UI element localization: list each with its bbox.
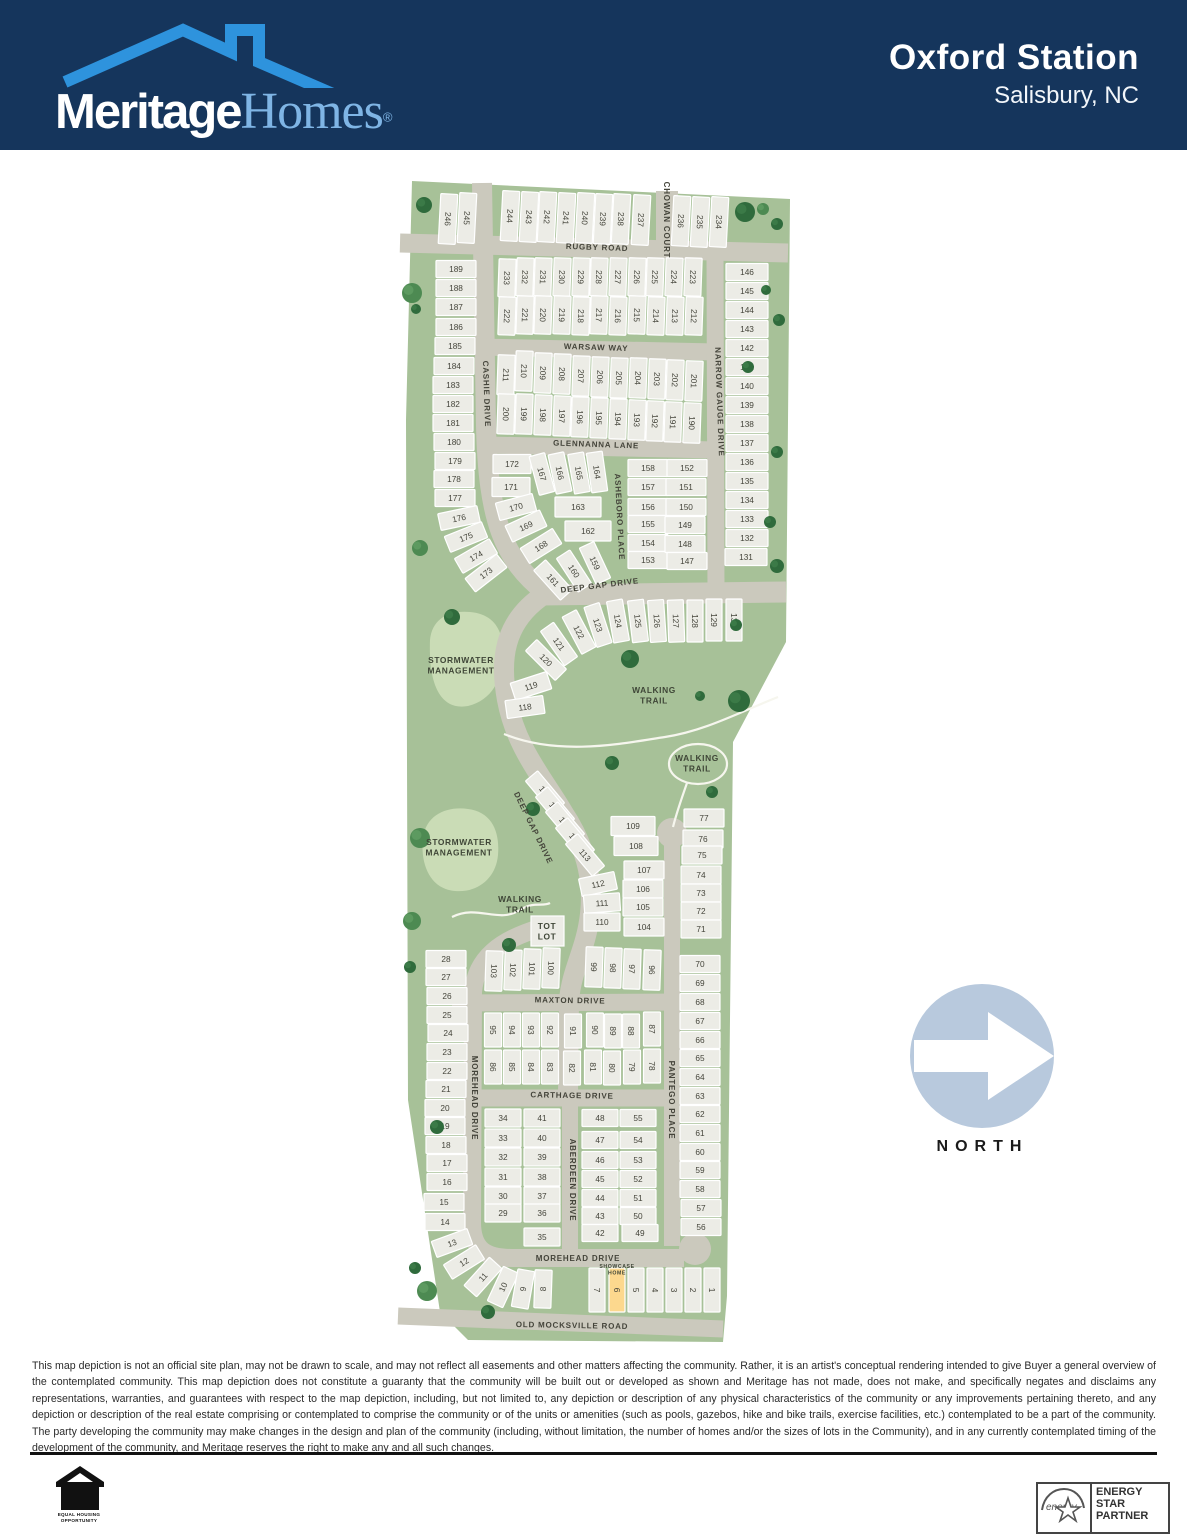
lot-number: 39 bbox=[537, 1152, 547, 1162]
lot-154: 154 bbox=[628, 535, 668, 552]
lot-number: 220 bbox=[538, 308, 548, 323]
lot-number: 30 bbox=[498, 1191, 508, 1201]
lot-number: 208 bbox=[557, 367, 567, 382]
lot-number: 95 bbox=[488, 1025, 498, 1035]
lot-number: 59 bbox=[695, 1165, 705, 1175]
lot-number: 101 bbox=[527, 962, 537, 977]
lot-number: 149 bbox=[678, 520, 692, 530]
lot-21: 21 bbox=[426, 1081, 466, 1098]
lot-20: 20 bbox=[425, 1100, 465, 1117]
lot-138: 138 bbox=[726, 416, 768, 433]
lot-number: 55 bbox=[633, 1113, 643, 1123]
lot-number: 244 bbox=[505, 209, 516, 224]
lot-number: 67 bbox=[695, 1016, 705, 1026]
lot-number: 219 bbox=[557, 308, 567, 323]
lot-219: 219 bbox=[553, 296, 571, 335]
lot-number: 236 bbox=[676, 214, 687, 229]
lot-29: 29 bbox=[485, 1204, 521, 1222]
lot-number: 214 bbox=[651, 309, 661, 324]
lot-171: 171 bbox=[492, 478, 530, 497]
lot-206: 206 bbox=[591, 357, 609, 398]
lot-number: 96 bbox=[647, 965, 657, 975]
lot-47: 47 bbox=[582, 1132, 618, 1149]
lot-number: 14 bbox=[440, 1217, 450, 1227]
tree-icon bbox=[730, 619, 742, 631]
lot-number: 5 bbox=[631, 1288, 641, 1293]
lot-number: 135 bbox=[740, 476, 754, 486]
lot-27: 27 bbox=[426, 969, 466, 986]
lot-number: 66 bbox=[695, 1035, 705, 1045]
lot-51: 51 bbox=[620, 1190, 656, 1207]
lot-number: 156 bbox=[641, 502, 655, 512]
lot-number: 41 bbox=[537, 1113, 547, 1123]
tree-icon bbox=[771, 446, 783, 458]
lot-number: 218 bbox=[576, 309, 586, 324]
lot-202: 202 bbox=[666, 360, 684, 401]
street-label: CARTHAGE DRIVE bbox=[530, 1090, 613, 1100]
lot-60: 60 bbox=[680, 1144, 720, 1161]
lot-41: 41 bbox=[524, 1109, 560, 1127]
lot-number: 56 bbox=[696, 1222, 706, 1232]
tree-icon bbox=[757, 203, 769, 215]
lot-131: 131 bbox=[725, 549, 767, 566]
lot-number: 148 bbox=[678, 539, 692, 549]
lot-155: 155 bbox=[628, 516, 668, 533]
lot-18: 18 bbox=[426, 1137, 466, 1154]
lot-number: 118 bbox=[518, 701, 533, 713]
lot-56: 56 bbox=[681, 1219, 721, 1236]
tree-icon bbox=[430, 1120, 444, 1134]
lot-number: 46 bbox=[595, 1155, 605, 1165]
tree-icon bbox=[409, 1262, 421, 1274]
lot-198: 198 bbox=[534, 395, 552, 436]
lot-207: 207 bbox=[572, 356, 590, 397]
lot-number: 54 bbox=[633, 1135, 643, 1145]
lot-162: 162 bbox=[565, 521, 611, 541]
lot-number: 138 bbox=[740, 419, 754, 429]
lot-number: 26 bbox=[442, 991, 452, 1001]
lot-235: 235 bbox=[690, 197, 710, 248]
lot-number: 107 bbox=[637, 865, 651, 875]
lot-136: 136 bbox=[726, 454, 768, 471]
lot-148: 148 bbox=[665, 536, 705, 553]
lot-number: 234 bbox=[714, 215, 725, 230]
lot-number: 243 bbox=[524, 210, 535, 225]
lot-14: 14 bbox=[425, 1214, 465, 1231]
lot-153: 153 bbox=[628, 552, 668, 569]
lot-38: 38 bbox=[524, 1168, 560, 1186]
lot-1: 1 bbox=[704, 1268, 720, 1312]
lot-58: 58 bbox=[680, 1181, 720, 1198]
site-plan-page: { "header": { "brand_bold": "Meritage", … bbox=[0, 0, 1187, 1536]
lot-2: 2 bbox=[685, 1268, 701, 1312]
lot-111: 111 bbox=[583, 893, 620, 913]
lot-number: 158 bbox=[641, 463, 655, 473]
lot-number: 34 bbox=[498, 1113, 508, 1123]
lot-147: 147 bbox=[667, 553, 707, 570]
lot-number: 91 bbox=[568, 1026, 578, 1036]
lot-number: 22 bbox=[442, 1066, 452, 1076]
lot-237: 237 bbox=[631, 195, 651, 246]
lot-85: 85 bbox=[504, 1050, 521, 1084]
lot-16: 16 bbox=[427, 1174, 467, 1191]
lot-number: 86 bbox=[488, 1062, 498, 1072]
lot-97: 97 bbox=[623, 949, 641, 990]
lot-88: 88 bbox=[623, 1014, 640, 1048]
lot-number: 131 bbox=[739, 552, 753, 562]
lot-number: 230 bbox=[557, 270, 567, 285]
lot-number: 58 bbox=[695, 1184, 705, 1194]
lot-89: 89 bbox=[605, 1014, 622, 1048]
lot-number: 137 bbox=[740, 438, 754, 448]
lot-number: 226 bbox=[632, 270, 642, 285]
lot-number: 110 bbox=[595, 917, 609, 927]
area-label: TOTLOT bbox=[538, 921, 557, 942]
lot-215: 215 bbox=[628, 296, 646, 335]
lot-number: 33 bbox=[498, 1133, 508, 1143]
tree-icon bbox=[417, 1281, 437, 1301]
lot-135: 135 bbox=[726, 473, 768, 490]
lot-32: 32 bbox=[485, 1148, 521, 1166]
lot-234: 234 bbox=[709, 197, 729, 248]
lot-33: 33 bbox=[485, 1129, 521, 1147]
lot-number: 196 bbox=[575, 410, 585, 425]
lot-number: 242 bbox=[542, 210, 553, 225]
eho-label-line2: OPPORTUNITY bbox=[52, 1518, 106, 1524]
lot-232: 232 bbox=[516, 258, 534, 297]
area-label: STORMWATERMANAGEMENT bbox=[426, 837, 493, 858]
lot-number: 108 bbox=[629, 841, 643, 851]
lot-number: 37 bbox=[537, 1191, 547, 1201]
lot-108: 108 bbox=[614, 837, 658, 856]
lot-93: 93 bbox=[523, 1013, 540, 1047]
lot-193: 193 bbox=[628, 400, 646, 441]
tree-icon bbox=[735, 202, 755, 222]
lot-number: 6 bbox=[612, 1288, 622, 1293]
lot-number: 195 bbox=[594, 411, 604, 426]
lot-241: 241 bbox=[556, 193, 576, 244]
lot-number: 62 bbox=[695, 1109, 705, 1119]
lot-50: 50 bbox=[620, 1208, 656, 1225]
lot-number: 109 bbox=[626, 821, 640, 831]
lot-number: 221 bbox=[520, 308, 530, 323]
lot-227: 227 bbox=[609, 258, 627, 297]
lot-number: 190 bbox=[687, 416, 697, 431]
lot-109: 109 bbox=[611, 817, 655, 836]
lot-22: 22 bbox=[427, 1063, 467, 1080]
energy-star-partner-logo: energy ENERGYSTARPARTNER bbox=[1036, 1482, 1170, 1534]
lot-25: 25 bbox=[427, 1007, 467, 1024]
lot-84: 84 bbox=[523, 1050, 540, 1084]
lot-226: 226 bbox=[628, 258, 646, 297]
lot-52: 52 bbox=[620, 1171, 656, 1188]
lot-number: 163 bbox=[571, 502, 585, 512]
lot-number: 232 bbox=[520, 270, 530, 285]
lot-63: 63 bbox=[680, 1088, 720, 1105]
lot-number: 198 bbox=[538, 408, 548, 423]
lot-144: 144 bbox=[726, 302, 768, 319]
lot-number: 140 bbox=[740, 381, 754, 391]
lot-181: 181 bbox=[433, 415, 473, 432]
lot-number: 93 bbox=[526, 1025, 536, 1035]
lot-number: 133 bbox=[740, 514, 754, 524]
lot-218: 218 bbox=[572, 297, 590, 336]
street-label: MOREHEAD DRIVE bbox=[470, 1056, 479, 1141]
lot-number: 223 bbox=[688, 270, 698, 285]
lot-number: 94 bbox=[507, 1025, 517, 1035]
lot-107: 107 bbox=[624, 861, 664, 879]
lot-231: 231 bbox=[534, 258, 552, 297]
lot-79: 79 bbox=[624, 1050, 641, 1084]
lot-214: 214 bbox=[647, 297, 665, 336]
lot-189: 189 bbox=[436, 261, 476, 278]
lot-105: 105 bbox=[623, 898, 663, 916]
lot-number: 98 bbox=[608, 963, 618, 973]
lot-212: 212 bbox=[685, 297, 703, 336]
lot-number: 235 bbox=[695, 215, 706, 230]
lot-134: 134 bbox=[726, 492, 768, 509]
lot-number: 68 bbox=[695, 997, 705, 1007]
lot-133: 133 bbox=[726, 511, 768, 528]
lot-number: 4 bbox=[650, 1288, 660, 1293]
lot-number: 103 bbox=[489, 964, 499, 979]
lot-102: 102 bbox=[504, 950, 522, 991]
lot-number: 70 bbox=[695, 959, 705, 969]
street-label: MOREHEAD DRIVE bbox=[536, 1254, 621, 1263]
lot-92: 92 bbox=[542, 1013, 559, 1047]
lot-236: 236 bbox=[671, 196, 691, 247]
lot-132: 132 bbox=[726, 530, 768, 547]
lot-158: 158 bbox=[628, 460, 668, 477]
lot-number: 134 bbox=[740, 495, 754, 505]
lot-number: 82 bbox=[567, 1063, 577, 1073]
street-label: ABERDEEN DRIVE bbox=[568, 1139, 577, 1222]
lot-number: 65 bbox=[695, 1053, 705, 1063]
lot-number: 90 bbox=[590, 1025, 600, 1035]
lot-number: 202 bbox=[670, 373, 680, 388]
lot-188: 188 bbox=[436, 280, 476, 297]
lot-number: 238 bbox=[616, 212, 627, 227]
lot-34: 34 bbox=[485, 1109, 521, 1127]
lot-69: 69 bbox=[680, 975, 720, 992]
lot-186: 186 bbox=[436, 319, 476, 336]
lot-40: 40 bbox=[524, 1129, 560, 1147]
lot-96: 96 bbox=[643, 950, 661, 991]
lot-64: 64 bbox=[680, 1069, 720, 1086]
lot-number: 186 bbox=[449, 322, 463, 332]
lot-number: 104 bbox=[637, 922, 651, 932]
lot-number: 8 bbox=[538, 1286, 548, 1291]
lot-number: 125 bbox=[632, 614, 644, 629]
lot-86: 86 bbox=[485, 1050, 502, 1084]
lot-number: 127 bbox=[671, 614, 681, 629]
lot-number: 146 bbox=[740, 267, 754, 277]
lot-180: 180 bbox=[434, 434, 474, 451]
lot-number: 139 bbox=[740, 400, 754, 410]
tree-icon bbox=[412, 540, 428, 556]
lot-number: 228 bbox=[594, 270, 604, 285]
lot-number: 97 bbox=[627, 964, 637, 974]
lot-199: 199 bbox=[515, 394, 533, 435]
lot-178: 178 bbox=[434, 471, 474, 488]
lot-194: 194 bbox=[609, 399, 627, 440]
lot-number: 213 bbox=[670, 309, 680, 324]
lot-43: 43 bbox=[582, 1208, 618, 1225]
lot-number: 21 bbox=[441, 1084, 451, 1094]
equal-housing-logo: EQUAL HOUSING OPPORTUNITY bbox=[52, 1466, 122, 1524]
lot-number: 15 bbox=[439, 1197, 449, 1207]
lot-157: 157 bbox=[628, 479, 668, 496]
lot-45: 45 bbox=[582, 1171, 618, 1188]
lot-number: 233 bbox=[502, 271, 512, 286]
lot-number: 79 bbox=[627, 1062, 637, 1072]
lot-number: 224 bbox=[669, 270, 679, 285]
lot-48: 48 bbox=[582, 1110, 618, 1127]
lot-number: 60 bbox=[695, 1147, 705, 1157]
lot-number: 171 bbox=[504, 482, 518, 492]
lot-243: 243 bbox=[519, 192, 539, 243]
lot-26: 26 bbox=[427, 988, 467, 1005]
lot-number: 87 bbox=[647, 1024, 657, 1034]
lot-23: 23 bbox=[427, 1044, 467, 1061]
lot-163: 163 bbox=[555, 497, 601, 517]
site-plan-map: 2462452442432422412402392382372362352341… bbox=[0, 0, 1187, 1536]
lot-number: 154 bbox=[641, 538, 655, 548]
street-label: CHOWAN COURT bbox=[662, 182, 671, 259]
lot-110: 110 bbox=[584, 913, 620, 931]
lot-245: 245 bbox=[457, 193, 477, 244]
lot-number: 222 bbox=[502, 309, 512, 324]
lot-46: 46 bbox=[582, 1152, 618, 1169]
lot-number: 197 bbox=[557, 409, 567, 424]
lot-number: 162 bbox=[581, 526, 595, 536]
lot-number: 75 bbox=[697, 850, 707, 860]
footer-divider bbox=[30, 1452, 1157, 1455]
lot-91: 91 bbox=[565, 1014, 582, 1048]
tree-icon bbox=[481, 1305, 495, 1319]
lot-139: 139 bbox=[726, 397, 768, 414]
lot-151: 151 bbox=[666, 479, 706, 496]
lot-number: 25 bbox=[442, 1010, 452, 1020]
lot-number: 245 bbox=[462, 211, 473, 226]
lot-100: 100 bbox=[542, 948, 560, 989]
lot-number: 85 bbox=[507, 1062, 517, 1072]
lot-55: 55 bbox=[620, 1110, 656, 1127]
lot-number: 209 bbox=[538, 366, 548, 381]
lot-30: 30 bbox=[485, 1187, 521, 1205]
lot-number: 89 bbox=[608, 1026, 618, 1036]
lot-number: 16 bbox=[442, 1177, 452, 1187]
lot-222: 222 bbox=[498, 297, 516, 336]
lot-213: 213 bbox=[666, 297, 684, 336]
lot-number: 20 bbox=[440, 1103, 450, 1113]
lot-200: 200 bbox=[497, 394, 515, 435]
lot-126: 126 bbox=[648, 599, 667, 642]
lot-number: 17 bbox=[442, 1158, 452, 1168]
lot-number: 231 bbox=[538, 270, 548, 285]
lot-number: 179 bbox=[448, 456, 462, 466]
lot-number: 164 bbox=[591, 464, 603, 479]
lot-65: 65 bbox=[680, 1050, 720, 1067]
lot-number: 181 bbox=[446, 418, 460, 428]
lot-number: 32 bbox=[498, 1152, 508, 1162]
lot-72: 72 bbox=[681, 902, 721, 920]
lot-number: 81 bbox=[588, 1062, 598, 1072]
lot-number: 188 bbox=[449, 283, 463, 293]
lot-31: 31 bbox=[485, 1168, 521, 1186]
lot-216: 216 bbox=[609, 297, 627, 336]
tree-icon bbox=[770, 559, 784, 573]
lot-number: 44 bbox=[595, 1193, 605, 1203]
lot-number: 194 bbox=[613, 412, 623, 427]
lot-156: 156 bbox=[628, 499, 668, 516]
tree-icon bbox=[502, 938, 516, 952]
street-label: MAXTON DRIVE bbox=[535, 995, 606, 1005]
lot-number: 211 bbox=[501, 368, 511, 382]
lot-39: 39 bbox=[524, 1148, 560, 1166]
lot-4: 4 bbox=[647, 1268, 663, 1312]
lot-3: 3 bbox=[666, 1268, 682, 1312]
lot-number: 77 bbox=[699, 813, 709, 823]
lot-number: 76 bbox=[698, 834, 708, 844]
lot-number: 183 bbox=[446, 380, 460, 390]
lot-number: 212 bbox=[689, 309, 699, 324]
lot-number: 205 bbox=[614, 371, 624, 386]
lot-number: 43 bbox=[595, 1211, 605, 1221]
tree-icon bbox=[742, 361, 754, 373]
lot-number: 92 bbox=[545, 1025, 555, 1035]
lot-number: 51 bbox=[633, 1193, 643, 1203]
lot-number: 178 bbox=[447, 474, 461, 484]
lot-number: 27 bbox=[441, 972, 451, 982]
lot-17: 17 bbox=[427, 1155, 467, 1172]
lot-128: 128 bbox=[687, 600, 703, 642]
lot-number: 225 bbox=[650, 270, 660, 285]
lot-68: 68 bbox=[680, 994, 720, 1011]
lot-number: 151 bbox=[679, 482, 693, 492]
lot-number: 29 bbox=[498, 1208, 508, 1218]
lot-number: 49 bbox=[635, 1228, 645, 1238]
tree-icon bbox=[621, 650, 639, 668]
tree-icon bbox=[402, 283, 422, 303]
tree-icon bbox=[695, 691, 705, 701]
lot-number: 80 bbox=[607, 1063, 617, 1073]
lot-number: 215 bbox=[632, 308, 642, 323]
tree-icon bbox=[411, 304, 421, 314]
lot-number: 2 bbox=[688, 1288, 698, 1293]
area-label: STORMWATERMANAGEMENT bbox=[428, 655, 495, 676]
lot-182: 182 bbox=[433, 396, 473, 413]
lot-240: 240 bbox=[575, 193, 595, 244]
lot-70: 70 bbox=[680, 956, 720, 973]
lot-204: 204 bbox=[629, 358, 647, 399]
lot-number: 207 bbox=[576, 369, 586, 384]
lot-number: 57 bbox=[696, 1203, 706, 1213]
lot-230: 230 bbox=[553, 258, 571, 297]
lot-224: 224 bbox=[665, 258, 683, 297]
lot-149: 149 bbox=[665, 517, 705, 534]
tree-icon bbox=[403, 912, 421, 930]
lot-44: 44 bbox=[582, 1190, 618, 1207]
lot-205: 205 bbox=[610, 358, 628, 399]
lot-36: 36 bbox=[524, 1204, 560, 1222]
lot-number: 45 bbox=[595, 1174, 605, 1184]
lot-210: 210 bbox=[515, 351, 533, 392]
lot-172: 172 bbox=[493, 455, 531, 474]
lot-number: 72 bbox=[696, 906, 706, 916]
lot-152: 152 bbox=[667, 460, 707, 477]
lot-208: 208 bbox=[553, 354, 571, 395]
